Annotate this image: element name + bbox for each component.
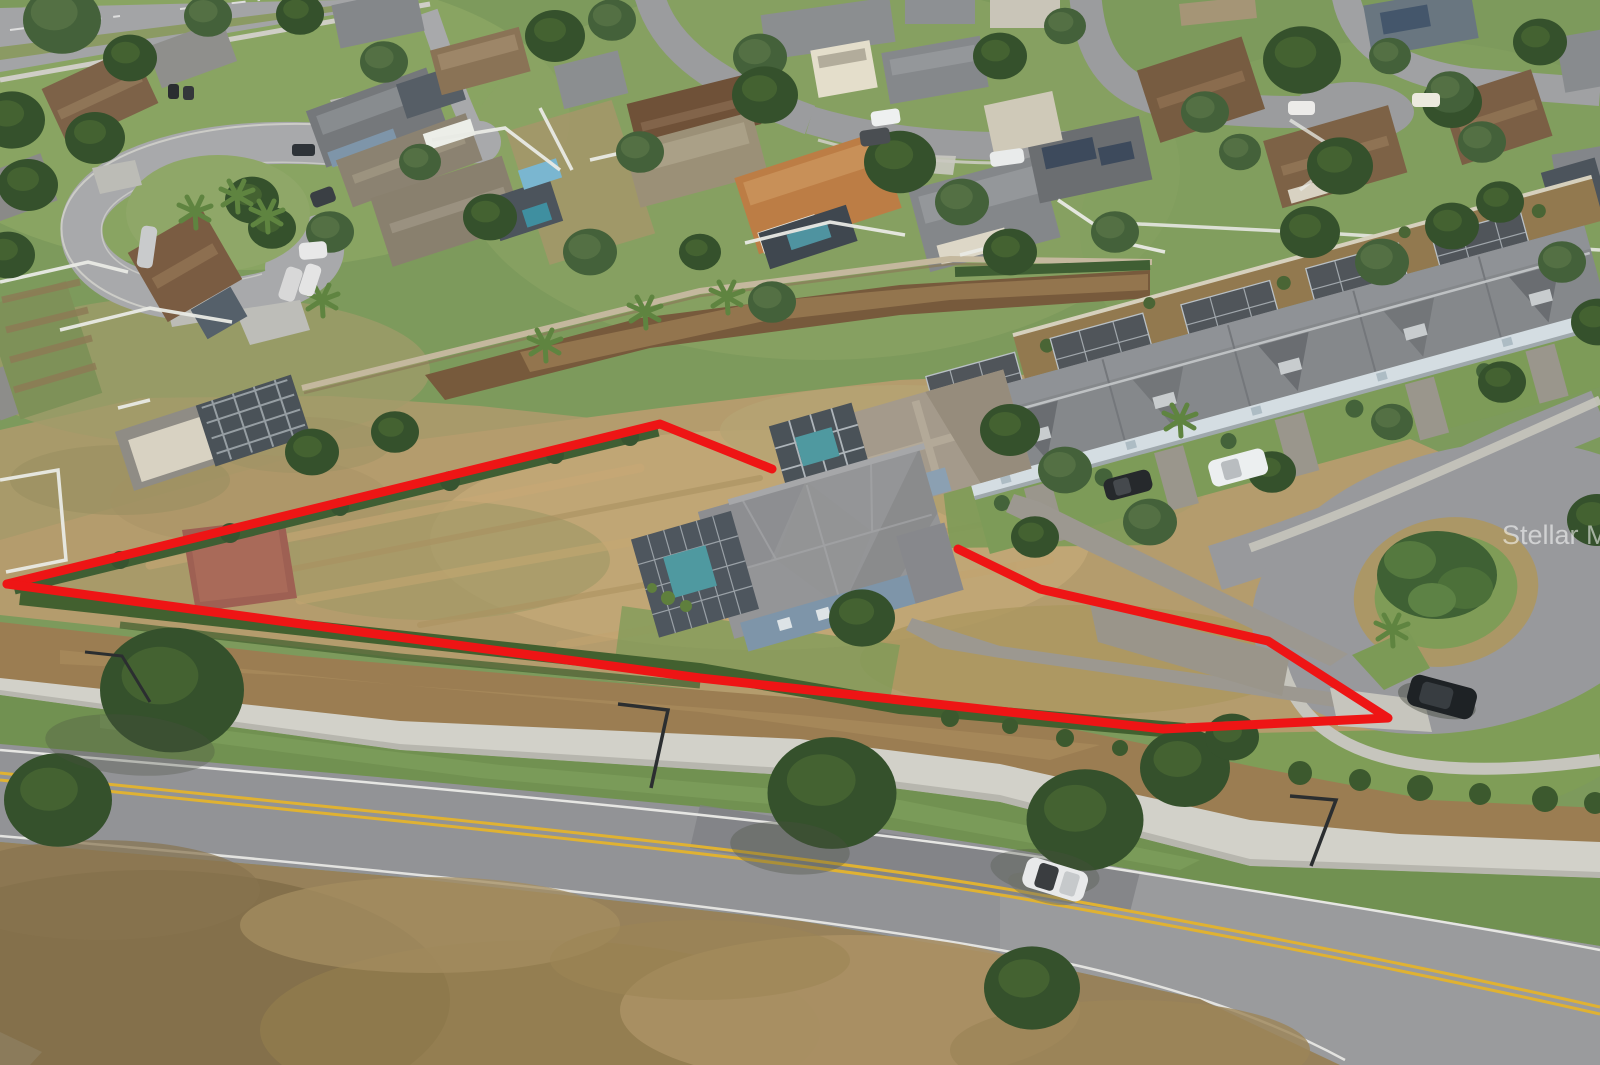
svg-text:Stellar MLS: Stellar MLS	[1502, 520, 1600, 550]
